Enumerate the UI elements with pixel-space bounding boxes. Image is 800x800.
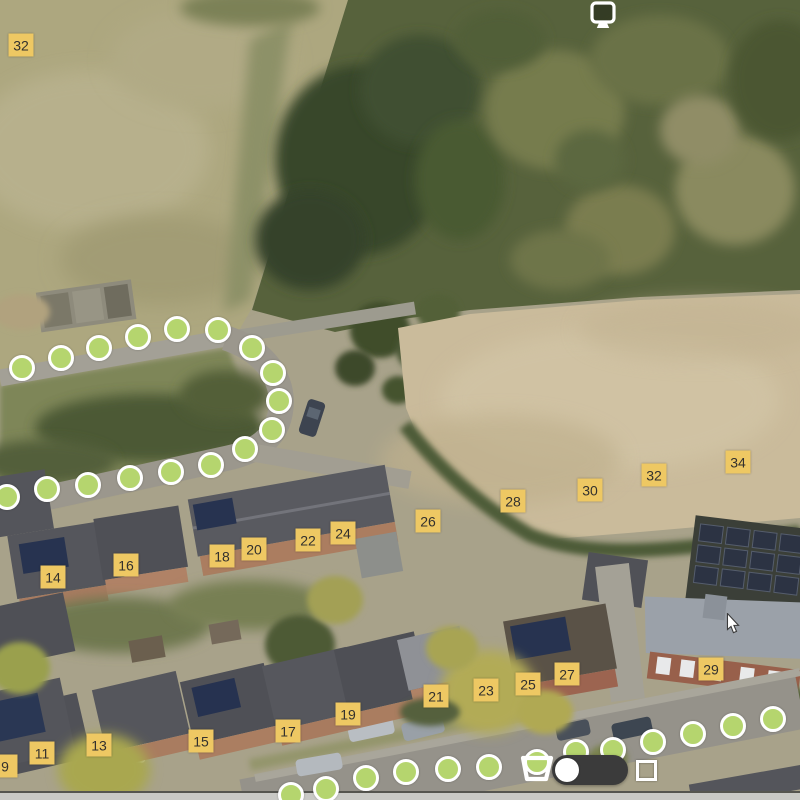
view-toggle-knob[interactable]: [555, 758, 579, 782]
monitor-icon[interactable]: [589, 1, 617, 36]
aerial-map-view[interactable]: 3214161820222426283032349111315171921232…: [0, 0, 800, 800]
square-icon[interactable]: [636, 760, 657, 781]
view-toggle[interactable]: [552, 755, 628, 785]
aerial-photo-background: [0, 0, 800, 800]
bucket-icon[interactable]: [518, 752, 556, 789]
